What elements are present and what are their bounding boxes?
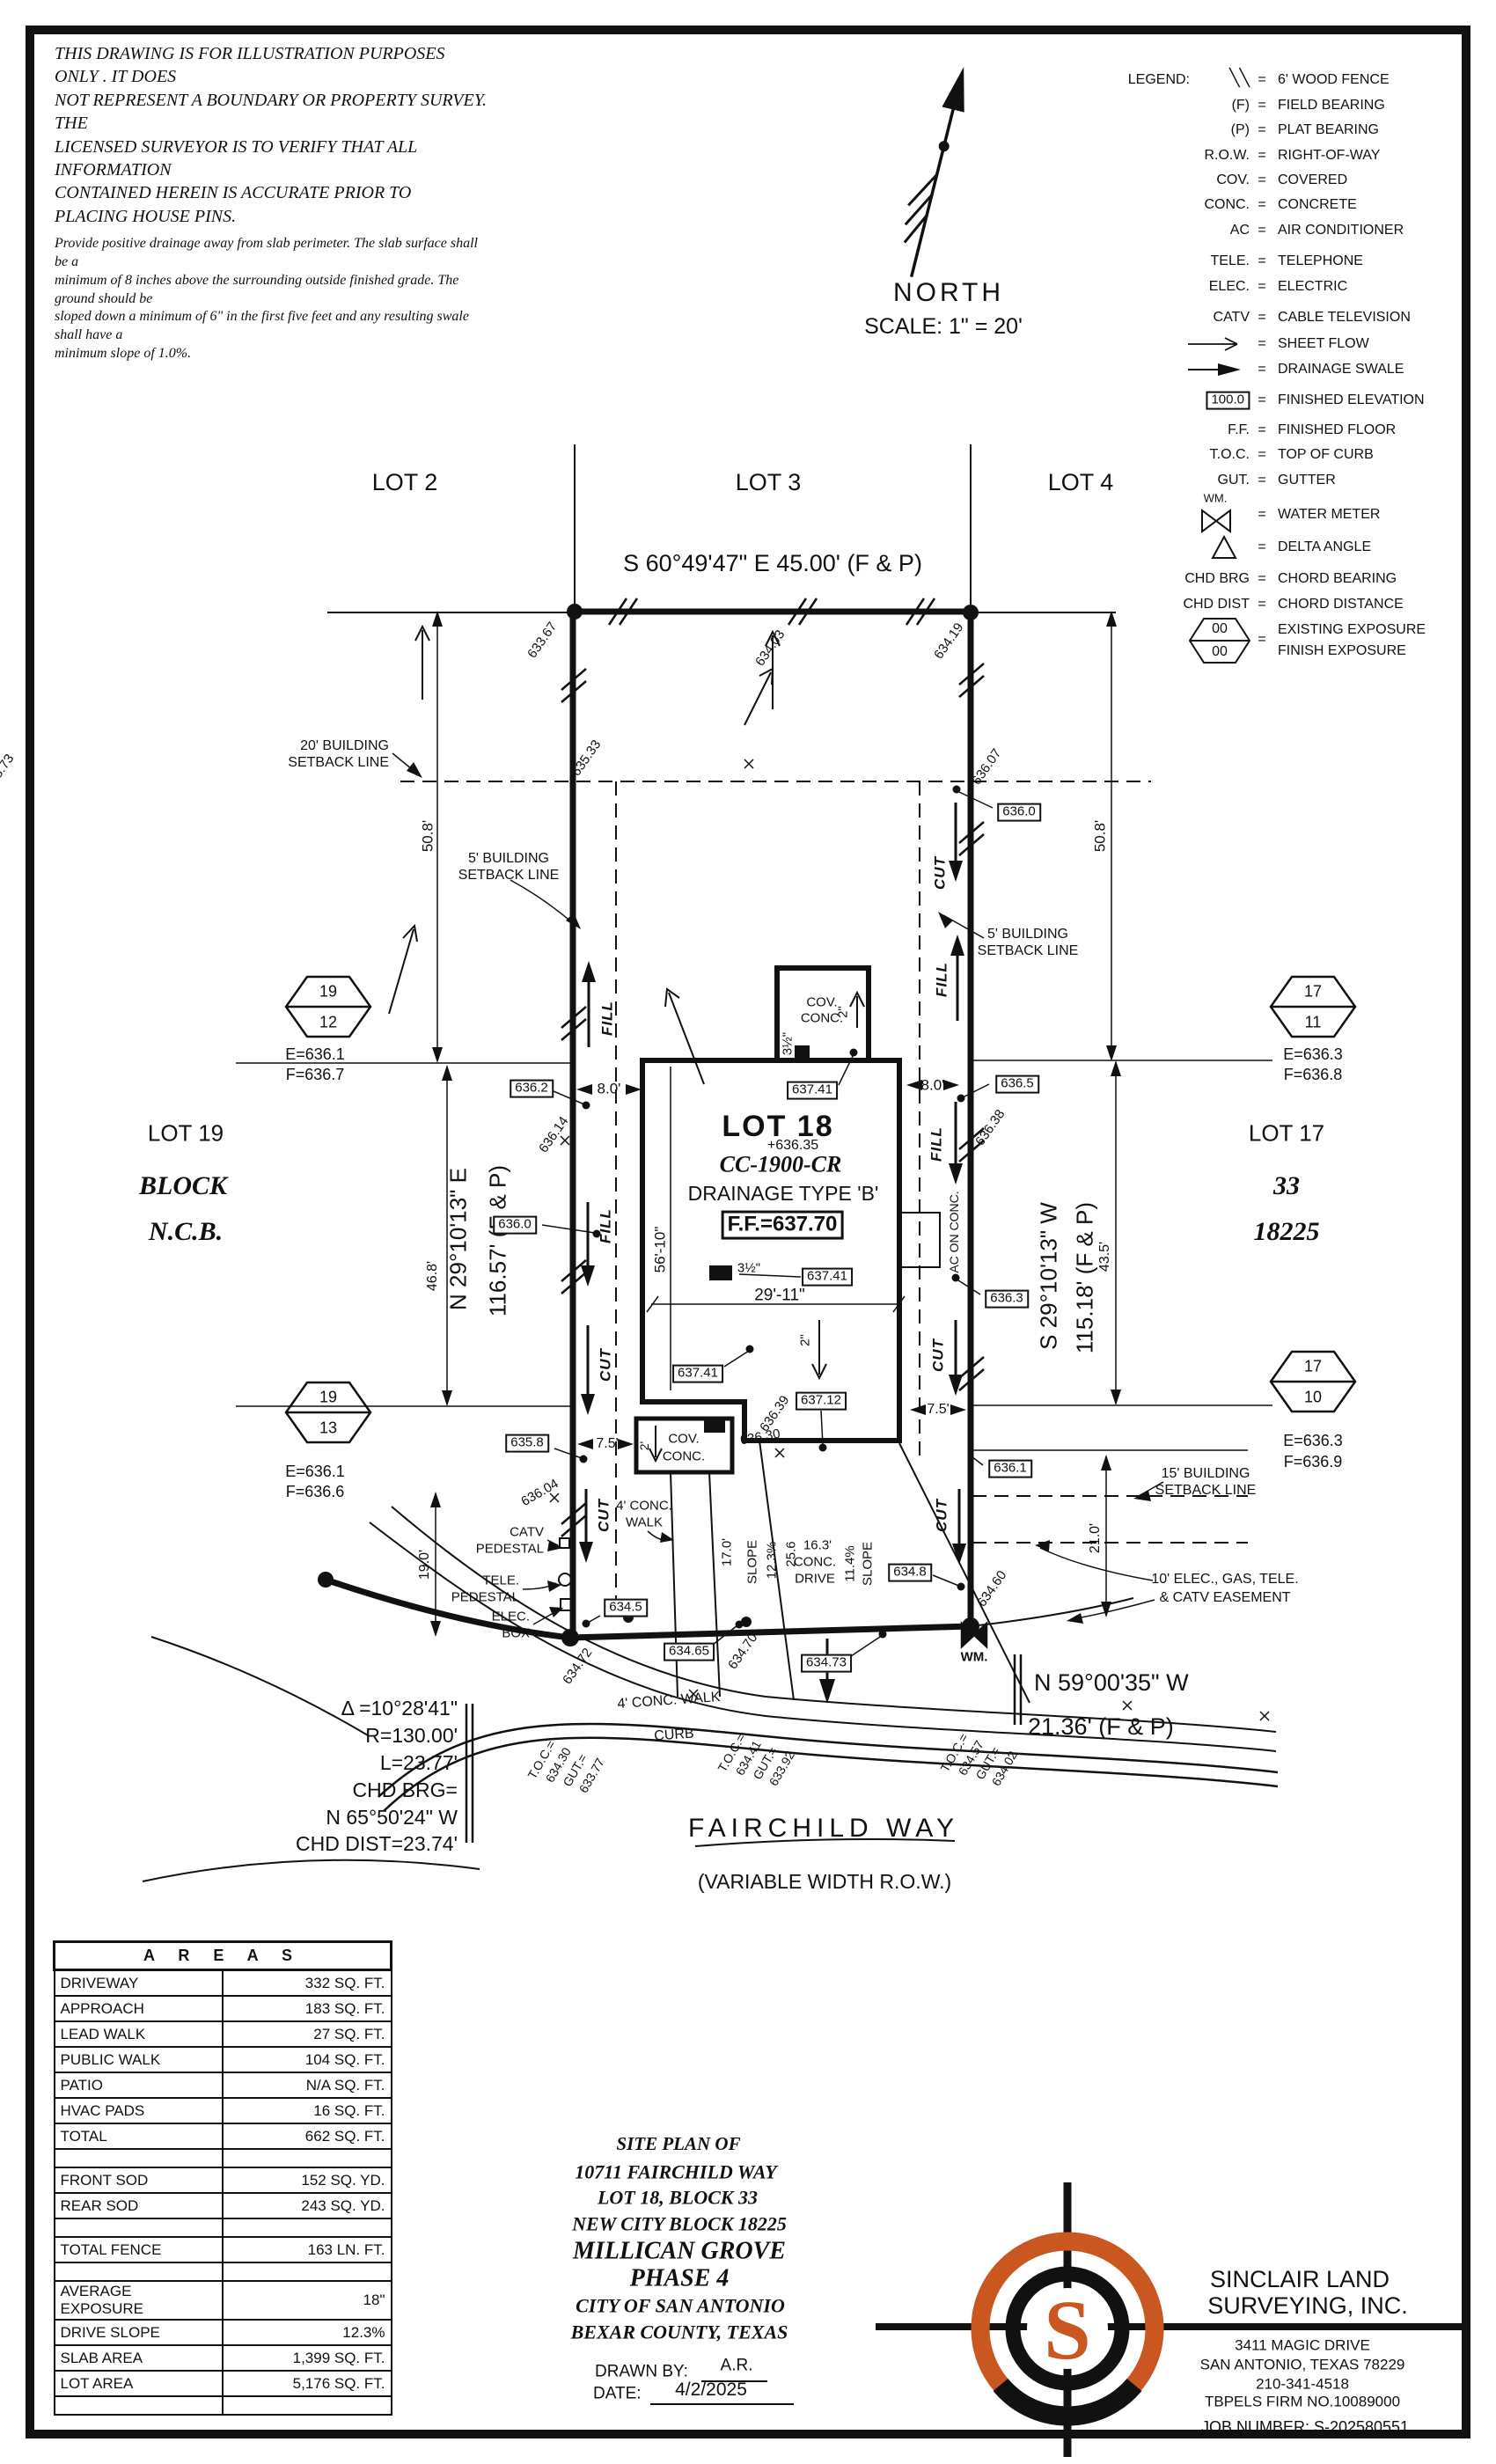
drawn-by-value: A.R. bbox=[721, 2356, 753, 2374]
drainage-type: DRAINAGE TYPE 'B' bbox=[688, 1183, 879, 1206]
disclaimer-line: LICENSED SURVEYOR IS TO VERIFY THAT ALL … bbox=[55, 136, 488, 182]
east-boundary-bearing: S 29°10'13" W bbox=[1036, 1202, 1061, 1350]
drainage-note-line: minimum slope of 1.0%. bbox=[55, 345, 488, 363]
west-boundary-bearing: N 29°10'13" E bbox=[445, 1168, 471, 1310]
table-row: AVERAGE EXPOSURE18" bbox=[55, 2281, 392, 2320]
table-row: FRONT SOD152 SQ. YD. bbox=[55, 2167, 392, 2193]
job-number: JOB NUMBER: S-202580551 bbox=[1201, 2418, 1409, 2436]
areas-table: A R E A S DRIVEWAY332 SQ. FT. APPROACH18… bbox=[53, 1940, 392, 2416]
table-row: LEAD WALK27 SQ. FT. bbox=[55, 2021, 392, 2047]
street-name: FAIRCHILD WAY bbox=[688, 1814, 959, 1844]
scale-label: SCALE: 1" = 20' bbox=[864, 314, 1023, 339]
site-plan-sheet: S THIS DRAWING IS FOR ILLUSTRATION PURPO… bbox=[0, 0, 1496, 2464]
ac-pad-label: AC ON CONC. bbox=[948, 1191, 962, 1272]
finished-elevation-box: 100.0 bbox=[1206, 392, 1250, 410]
south-boundary-bearing: N 59°00'35" W bbox=[1034, 1669, 1189, 1696]
drainage-note-line: minimum of 8 inches above the surroundin… bbox=[55, 272, 488, 309]
table-row: PATION/A SQ. FT. bbox=[55, 2072, 392, 2098]
drainage-swale-arrow-icon bbox=[1186, 363, 1251, 377]
north-label: NORTH bbox=[893, 278, 1004, 308]
north-boundary-bearing: S 60°49'47" E 45.00' (F & P) bbox=[623, 550, 922, 576]
table-row: REAR SOD243 SQ. YD. bbox=[55, 2193, 392, 2218]
finished-floor-elevation: F.F.=637.70 bbox=[722, 1211, 844, 1240]
delta-angle-icon bbox=[1211, 535, 1237, 560]
south-boundary-distance: 21.36' (F & P) bbox=[1028, 1713, 1174, 1740]
disclaimer-line: CONTAINED HEREIN IS ACCURATE PRIOR TO PL… bbox=[55, 181, 488, 228]
disclaimer-line: NOT REPRESENT A BOUNDARY OR PROPERTY SUR… bbox=[55, 89, 488, 136]
table-spacer-row bbox=[55, 2262, 392, 2281]
plan-code: CC-1900-CR bbox=[720, 1151, 842, 1177]
table-spacer-row bbox=[55, 2218, 392, 2237]
table-spacer-row bbox=[55, 2149, 392, 2167]
tele-pedestal-icon bbox=[559, 1573, 571, 1586]
north-arrow-icon bbox=[891, 62, 974, 279]
wood-fence-icon: ╲╲ bbox=[1229, 69, 1250, 87]
lot-19-label: LOT 19 bbox=[148, 1120, 224, 1146]
table-spacer-row bbox=[55, 2396, 392, 2415]
table-row: SLAB AREA1,399 SQ. FT. bbox=[55, 2345, 392, 2371]
areas-table-header: A R E A S bbox=[55, 1942, 392, 1970]
table-row: LOT AREA5,176 SQ. FT. bbox=[55, 2371, 392, 2396]
catv-pedestal-icon bbox=[560, 1538, 569, 1548]
east-boundary-distance: 115.18' (F & P) bbox=[1072, 1202, 1097, 1353]
lot-17-label: LOT 17 bbox=[1249, 1120, 1324, 1146]
table-row: DRIVE SLOPE12.3% bbox=[55, 2320, 392, 2345]
boundary-corner-dots bbox=[318, 604, 979, 1646]
street-row: (VARIABLE WIDTH R.O.W.) bbox=[698, 1871, 951, 1894]
water-meter-icon bbox=[1199, 508, 1234, 534]
date-value: 4/2/2025 bbox=[675, 2380, 747, 2401]
legend-title: LEGEND: bbox=[1128, 72, 1190, 88]
drainage-note-line: Provide positive drainage away from slab… bbox=[55, 235, 488, 272]
table-row: DRIVEWAY332 SQ. FT. bbox=[55, 1970, 392, 1997]
table-row: TOTAL662 SQ. FT. bbox=[55, 2123, 392, 2149]
disclaimer-line: THIS DRAWING IS FOR ILLUSTRATION PURPOSE… bbox=[55, 42, 488, 89]
drainage-note-line: sloped down a minimum of 6" in the first… bbox=[55, 308, 488, 345]
table-row: APPROACH183 SQ. FT. bbox=[55, 1996, 392, 2021]
lot-3-label: LOT 3 bbox=[736, 469, 802, 495]
table-row: PUBLIC WALK104 SQ. FT. bbox=[55, 2047, 392, 2072]
disclaimer: THIS DRAWING IS FOR ILLUSTRATION PURPOSE… bbox=[55, 42, 488, 363]
subdivision-name: MILLICAN GROVE bbox=[573, 2237, 786, 2264]
west-boundary-distance: 116.57' (F & P) bbox=[485, 1165, 510, 1316]
lot-2-label: LOT 2 bbox=[372, 469, 438, 495]
sheet-flow-arrow-icon bbox=[1186, 337, 1251, 351]
logo-letter: S bbox=[1044, 2283, 1090, 2377]
ac-pad-outline bbox=[899, 1213, 940, 1267]
table-row: HVAC PADS16 SQ. FT. bbox=[55, 2098, 392, 2123]
lot-4-label: LOT 4 bbox=[1048, 469, 1114, 495]
table-row: TOTAL FENCE163 LN. FT. bbox=[55, 2237, 392, 2262]
firm-name: SINCLAIR LAND bbox=[1210, 2266, 1390, 2292]
